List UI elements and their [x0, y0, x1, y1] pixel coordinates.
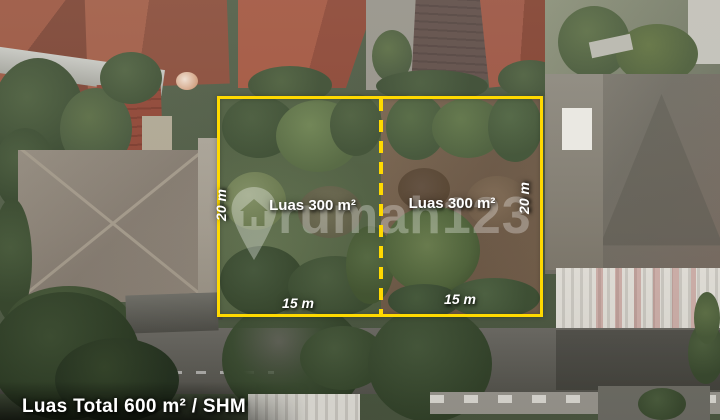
- tree-canopy: [100, 52, 162, 104]
- hip-roof-house: [18, 150, 204, 302]
- area-label-left: Luas 300 m²: [250, 198, 375, 215]
- area-label-right: Luas 300 m²: [392, 196, 512, 213]
- depth-label-right: 20 m: [517, 174, 543, 222]
- bush: [638, 388, 686, 420]
- satellite-dish: [176, 72, 198, 90]
- depth-label-left: 20 m: [214, 181, 240, 229]
- roof-left-wing: [545, 74, 603, 270]
- aerial-photo: rumah123 Luas 300 m² Luas 300 m² 20 m 20…: [0, 0, 720, 420]
- width-label-right: 15 m: [432, 292, 488, 307]
- width-label-left: 15 m: [270, 296, 326, 311]
- palm-frond: [694, 292, 720, 344]
- grey-shingle-roof: [545, 74, 720, 274]
- gable-roof-small: [125, 292, 218, 333]
- total-area-label: Luas Total 600 m² / SHM: [22, 396, 246, 418]
- roof-gable: [600, 94, 720, 270]
- plot-divider-line: [379, 99, 383, 314]
- roof-ridge: [18, 150, 204, 302]
- rust-streaks: [596, 268, 696, 330]
- maroon-roof: [412, 0, 493, 80]
- white-skylight: [562, 108, 592, 150]
